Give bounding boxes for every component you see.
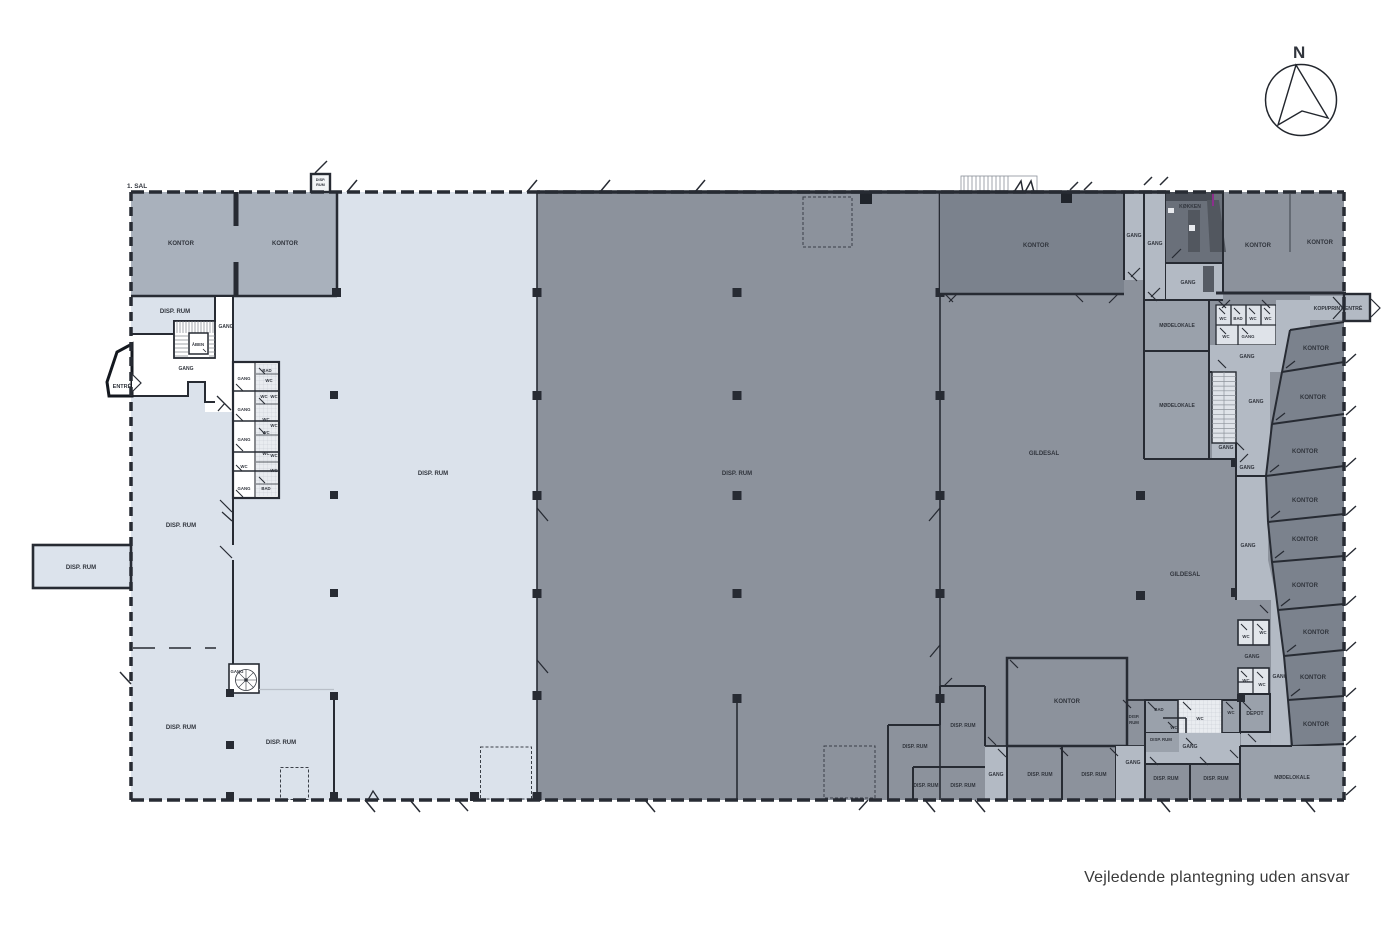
svg-text:KONTOR: KONTOR <box>1245 243 1272 249</box>
svg-text:WC: WC <box>1196 716 1203 721</box>
svg-text:WC: WC <box>1242 634 1249 639</box>
svg-text:DISP. RUM: DISP. RUM <box>722 471 752 477</box>
svg-text:Vejledende plantegning uden an: Vejledende plantegning uden ansvar <box>1084 869 1350 886</box>
svg-text:GANG: GANG <box>231 669 245 674</box>
svg-text:WC: WC <box>270 423 277 428</box>
svg-text:1. SAL: 1. SAL <box>127 183 147 190</box>
svg-text:DISP. RUM: DISP. RUM <box>950 783 975 789</box>
svg-text:GANG: GANG <box>1240 465 1255 471</box>
svg-text:DISP. RUM: DISP. RUM <box>160 309 190 315</box>
svg-text:KONTOR: KONTOR <box>1292 583 1319 589</box>
svg-text:KONTOR: KONTOR <box>1292 449 1319 455</box>
svg-text:DISP. RUM: DISP. RUM <box>1027 772 1052 778</box>
svg-text:KONTOR: KONTOR <box>1303 346 1330 352</box>
svg-text:DEPOT: DEPOT <box>1246 711 1263 717</box>
svg-text:ENTRÉ: ENTRÉ <box>113 382 132 390</box>
svg-text:DISP.: DISP. <box>1129 714 1140 719</box>
svg-text:DISP. RUM: DISP. RUM <box>1203 776 1228 782</box>
svg-text:WC: WC <box>1249 316 1256 321</box>
svg-text:GANG: GANG <box>1126 760 1141 766</box>
svg-text:KONTOR: KONTOR <box>272 241 299 247</box>
svg-text:WC: WC <box>265 378 272 383</box>
svg-text:GANG: GANG <box>1240 354 1255 360</box>
svg-text:WC: WC <box>262 430 269 435</box>
svg-text:GANG: GANG <box>1242 334 1256 339</box>
svg-text:KONTOR: KONTOR <box>1303 722 1330 728</box>
svg-text:KONTOR: KONTOR <box>1300 395 1327 401</box>
svg-text:DISP. RUM: DISP. RUM <box>66 565 96 571</box>
svg-text:GANG: GANG <box>1183 744 1198 750</box>
svg-text:GANG: GANG <box>238 486 252 491</box>
svg-text:DISP. RUM: DISP. RUM <box>418 471 448 477</box>
svg-text:GANG: GANG <box>179 366 194 372</box>
svg-text:DISP.: DISP. <box>316 178 325 182</box>
svg-text:RUM: RUM <box>316 183 325 187</box>
svg-text:GANG: GANG <box>1245 654 1260 660</box>
svg-text:DISP. RUM: DISP. RUM <box>902 744 927 750</box>
svg-text:WC: WC <box>262 451 269 456</box>
svg-text:KONTOR: KONTOR <box>1054 699 1081 705</box>
svg-text:GANG: GANG <box>1127 233 1142 239</box>
svg-text:BAD: BAD <box>1233 316 1242 321</box>
svg-text:WC: WC <box>262 417 269 422</box>
svg-text:GANG: GANG <box>238 376 252 381</box>
svg-text:GILDESAL: GILDESAL <box>1029 451 1060 457</box>
svg-text:WC: WC <box>1259 630 1266 635</box>
svg-text:WC: WC <box>1227 710 1234 715</box>
svg-text:N: N <box>1293 43 1305 62</box>
svg-text:WC: WC <box>1264 316 1271 321</box>
svg-text:BAD: BAD <box>262 368 271 373</box>
svg-text:GANG: GANG <box>1219 445 1234 451</box>
svg-text:MØDELOKALE: MØDELOKALE <box>1159 323 1195 329</box>
svg-text:WC: WC <box>260 394 267 399</box>
svg-text:DISP. RUM: DISP. RUM <box>266 740 296 746</box>
svg-text:WC: WC <box>270 394 277 399</box>
svg-text:WC: WC <box>1219 316 1226 321</box>
svg-text:GANG: GANG <box>238 437 252 442</box>
svg-text:DISP. RUM: DISP. RUM <box>1081 772 1106 778</box>
svg-text:BAD: BAD <box>261 486 270 491</box>
svg-text:GILDESAL: GILDESAL <box>1170 572 1201 578</box>
svg-text:GANG: GANG <box>238 407 252 412</box>
svg-text:WC: WC <box>270 468 277 473</box>
svg-text:RUM: RUM <box>1129 720 1139 725</box>
svg-text:GANG: GANG <box>1249 399 1264 405</box>
svg-text:WC: WC <box>240 464 247 469</box>
svg-text:KONTOR: KONTOR <box>1023 243 1050 249</box>
svg-text:DISP. RUM: DISP. RUM <box>166 523 196 529</box>
svg-text:GANG: GANG <box>1148 241 1163 247</box>
svg-text:WC: WC <box>270 453 277 458</box>
svg-text:KONTOR: KONTOR <box>168 241 195 247</box>
svg-text:GANG: GANG <box>989 772 1004 778</box>
svg-text:KONTOR: KONTOR <box>1292 498 1319 504</box>
svg-text:DISP. RUM: DISP. RUM <box>1153 776 1178 782</box>
svg-text:DISP. RUM: DISP. RUM <box>166 725 196 731</box>
svg-text:KONTOR: KONTOR <box>1292 537 1319 543</box>
svg-text:DISP. RUM: DISP. RUM <box>950 723 975 729</box>
svg-text:KØKKEN: KØKKEN <box>1179 204 1201 210</box>
svg-text:MØDELOKALE: MØDELOKALE <box>1274 775 1310 781</box>
svg-text:DISP. RUM: DISP. RUM <box>1150 737 1172 742</box>
svg-text:KONTOR: KONTOR <box>1303 630 1330 636</box>
svg-text:WC: WC <box>1242 678 1249 683</box>
svg-text:KOPI/PRINT ENTRÉ: KOPI/PRINT ENTRÉ <box>1314 304 1363 312</box>
svg-text:ÅBEN: ÅBEN <box>192 342 204 347</box>
svg-text:DISP. RUM: DISP. RUM <box>913 783 938 789</box>
svg-text:KONTOR: KONTOR <box>1307 240 1334 246</box>
svg-text:GANG: GANG <box>1241 543 1256 549</box>
svg-text:MØDELOKALE: MØDELOKALE <box>1159 403 1195 409</box>
svg-text:GANG: GANG <box>1181 280 1196 286</box>
svg-text:WC: WC <box>1258 682 1265 687</box>
svg-text:GANG: GANG <box>219 324 234 330</box>
svg-text:WC: WC <box>1222 334 1229 339</box>
svg-text:KONTOR: KONTOR <box>1300 675 1327 681</box>
